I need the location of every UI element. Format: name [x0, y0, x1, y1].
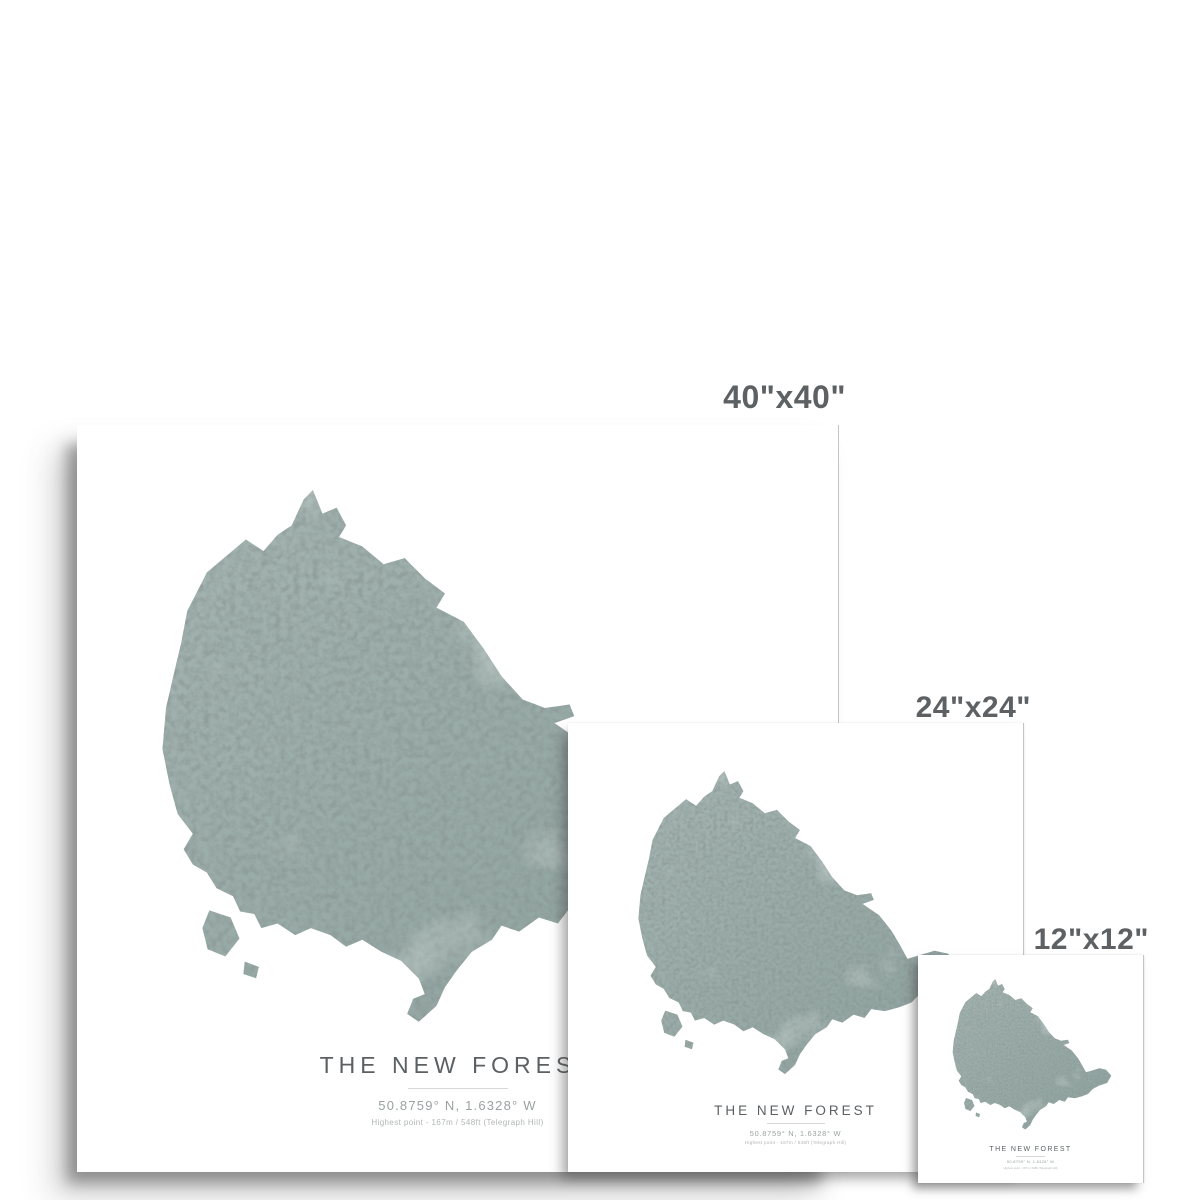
- product-mockup: 40"x40" 24"x24" 12"x12" The New Forest 5…: [0, 0, 1200, 1200]
- caption-divider: [408, 1088, 508, 1089]
- new-forest-map-small: [952, 979, 1112, 1131]
- poster-title: The New Forest: [918, 1146, 1143, 1153]
- size-label-40x40: 40"x40": [723, 381, 846, 413]
- size-label-12x12: 12"x12": [1034, 925, 1149, 955]
- poster-12x12: The New Forest 50.8759° N, 1.6328° W Hig…: [918, 955, 1144, 1183]
- poster-caption: The New Forest 50.8759° N, 1.6328° W Hig…: [918, 1146, 1143, 1170]
- poster-coordinates: 50.8759° N, 1.6328° W: [918, 1159, 1143, 1164]
- new-forest-map-medium: [637, 771, 960, 1077]
- poster-detail: Highest point - 167m / 548ft (Telegraph …: [918, 1166, 1143, 1170]
- caption-divider: [1016, 1156, 1045, 1157]
- size-label-24x24: 24"x24": [916, 693, 1031, 723]
- caption-divider: [767, 1123, 825, 1124]
